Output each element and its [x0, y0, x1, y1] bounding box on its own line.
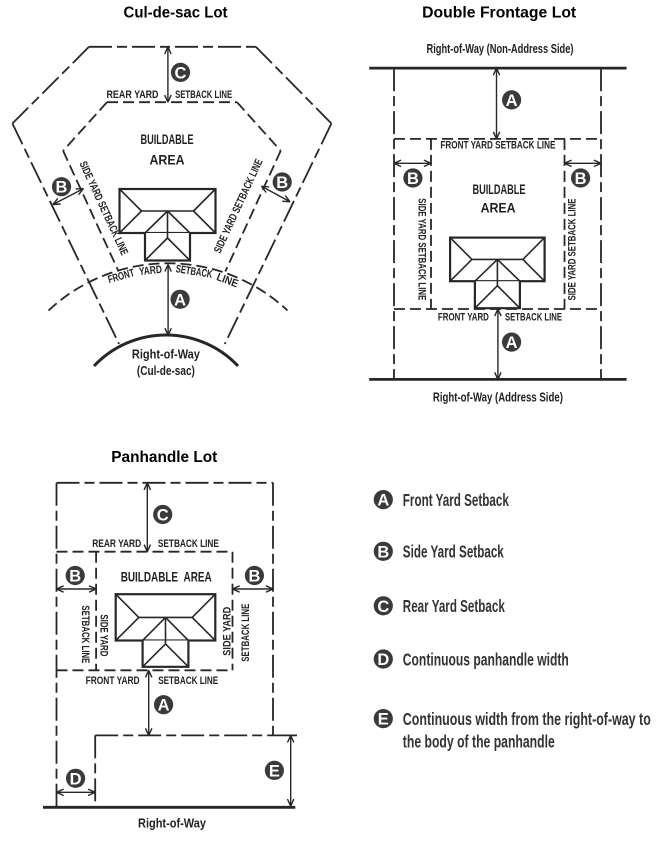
svg-text:B: B [276, 174, 288, 192]
svg-text:A: A [174, 291, 186, 309]
svg-text:AREA: AREA [150, 153, 185, 168]
svg-text:the body of the panhandle: the body of the panhandle [403, 731, 555, 751]
svg-text:Right-of-Way (Address Side): Right-of-Way (Address Side) [433, 391, 563, 405]
svg-text:BUILDABLE AREA: BUILDABLE AREA [121, 569, 212, 584]
svg-text:A: A [506, 334, 518, 352]
svg-text:A: A [377, 492, 389, 510]
svg-text:SETBACK LINE: SETBACK LINE [158, 675, 218, 687]
svg-text:B: B [407, 170, 419, 188]
svg-text:C: C [175, 64, 187, 82]
svg-text:C: C [377, 598, 389, 616]
svg-text:Front Yard Setback: Front Yard Setback [403, 490, 509, 510]
svg-text:(Cul-de-sac): (Cul-de-sac) [137, 364, 195, 378]
svg-text:YARD: YARD [138, 264, 162, 278]
svg-text:A: A [158, 697, 170, 715]
svg-text:FRONT YARD SETBACK LINE: FRONT YARD SETBACK LINE [440, 140, 555, 152]
svg-text:A: A [506, 92, 518, 110]
svg-text:Panhandle Lot: Panhandle Lot [111, 449, 217, 466]
svg-text:Side Yard Setback: Side Yard Setback [403, 542, 504, 562]
svg-text:Continuous width from the righ: Continuous width from the right-of-way t… [403, 709, 651, 729]
svg-text:E: E [378, 711, 389, 729]
svg-text:SIDE YARD SETBACK LINE: SIDE YARD SETBACK LINE [566, 199, 578, 301]
svg-text:FRONT YARD: FRONT YARD [438, 312, 489, 324]
svg-text:BUILDABLE: BUILDABLE [141, 132, 194, 147]
svg-text:SETBACK LINE: SETBACK LINE [175, 89, 232, 101]
svg-text:REAR YARD: REAR YARD [92, 538, 141, 550]
svg-text:B: B [56, 179, 68, 197]
svg-text:B: B [377, 543, 389, 561]
svg-text:AREA: AREA [481, 200, 516, 215]
svg-text:REAR YARD: REAR YARD [107, 89, 159, 101]
svg-text:SETBACK LINE: SETBACK LINE [158, 538, 219, 550]
svg-text:SETBACK LINE: SETBACK LINE [505, 312, 562, 324]
svg-text:D: D [70, 770, 82, 788]
svg-text:Cul-de-sac Lot: Cul-de-sac Lot [124, 5, 228, 22]
svg-text:E: E [269, 762, 280, 780]
svg-text:B: B [575, 170, 587, 188]
svg-text:B: B [69, 568, 81, 586]
svg-text:SIDE YARD: SIDE YARD [222, 607, 234, 656]
svg-text:D: D [377, 651, 389, 669]
svg-text:Right-of-Way: Right-of-Way [138, 816, 206, 830]
svg-text:Continuous panhandle width: Continuous panhandle width [403, 649, 569, 669]
svg-text:SIDE YARD SETBACK LINE: SIDE YARD SETBACK LINE [416, 198, 428, 300]
svg-text:SIDE YARD: SIDE YARD [97, 614, 109, 656]
svg-text:Double Frontage Lot: Double Frontage Lot [422, 5, 576, 22]
svg-text:SETBACK LINE: SETBACK LINE [240, 604, 252, 662]
svg-text:C: C [157, 507, 169, 525]
svg-text:BUILDABLE: BUILDABLE [473, 182, 526, 197]
svg-text:Right-of-Way (Non-Address Side: Right-of-Way (Non-Address Side) [427, 42, 574, 56]
svg-text:Right-of-Way: Right-of-Way [132, 348, 200, 362]
svg-text:B: B [248, 568, 260, 586]
svg-text:SETBACK LINE: SETBACK LINE [79, 605, 91, 663]
svg-text:FRONT YARD: FRONT YARD [86, 675, 140, 687]
svg-text:Rear Yard Setback: Rear Yard Setback [403, 596, 505, 616]
